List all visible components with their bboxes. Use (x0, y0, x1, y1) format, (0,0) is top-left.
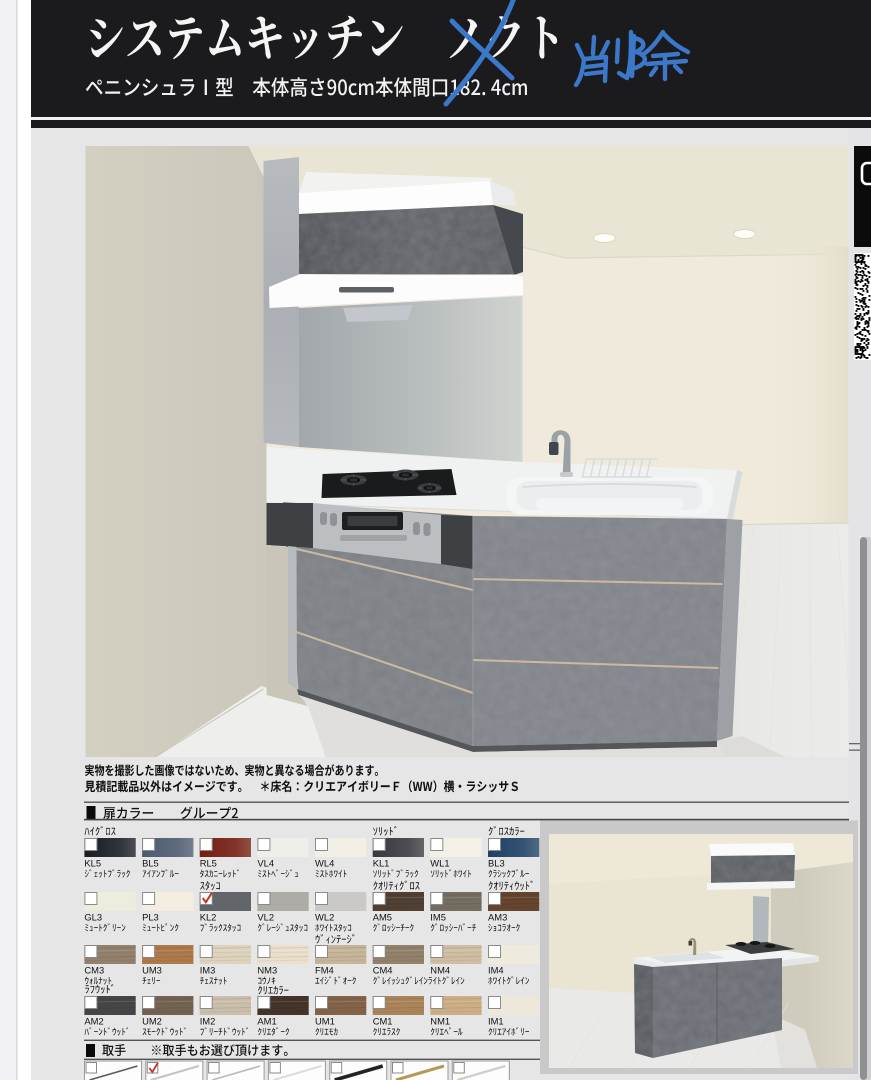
svg-text:AM1: AM1 (257, 1016, 276, 1027)
svg-text:BL5: BL5 (142, 858, 159, 869)
svg-text:UM3: UM3 (142, 965, 162, 976)
svg-text:IM1: IM1 (488, 1016, 504, 1027)
svg-text:NM3: NM3 (257, 965, 277, 976)
svg-text:VL2: VL2 (257, 912, 274, 923)
svg-text:BL3: BL3 (488, 858, 505, 869)
svg-text:UM1: UM1 (315, 1016, 335, 1027)
svg-text:FM4: FM4 (315, 965, 334, 976)
svg-text:KL1: KL1 (373, 858, 390, 869)
svg-text:WL1: WL1 (430, 858, 449, 869)
svg-text:AM3: AM3 (488, 912, 507, 923)
svg-text:CM1: CM1 (373, 1016, 393, 1027)
svg-text:AM5: AM5 (373, 912, 392, 923)
svg-text:IM4: IM4 (488, 965, 504, 976)
svg-text:IM3: IM3 (200, 965, 216, 976)
svg-text:WL2: WL2 (315, 912, 334, 923)
svg-text:RL5: RL5 (200, 858, 217, 869)
svg-text:VL4: VL4 (257, 858, 274, 869)
svg-text:PL3: PL3 (142, 912, 159, 923)
svg-text:CM4: CM4 (373, 965, 393, 976)
svg-text:IM2: IM2 (200, 1016, 216, 1027)
svg-text:IM5: IM5 (430, 912, 446, 923)
svg-text:GL3: GL3 (84, 912, 102, 923)
svg-text:WL4: WL4 (315, 858, 334, 869)
svg-text:NM4: NM4 (430, 965, 450, 976)
svg-text:KL2: KL2 (200, 912, 217, 923)
svg-text:AM2: AM2 (84, 1016, 103, 1027)
svg-text:KL5: KL5 (84, 858, 101, 869)
svg-text:NM1: NM1 (430, 1016, 450, 1027)
svg-text:CM3: CM3 (84, 965, 104, 976)
svg-text:UM2: UM2 (142, 1016, 162, 1027)
